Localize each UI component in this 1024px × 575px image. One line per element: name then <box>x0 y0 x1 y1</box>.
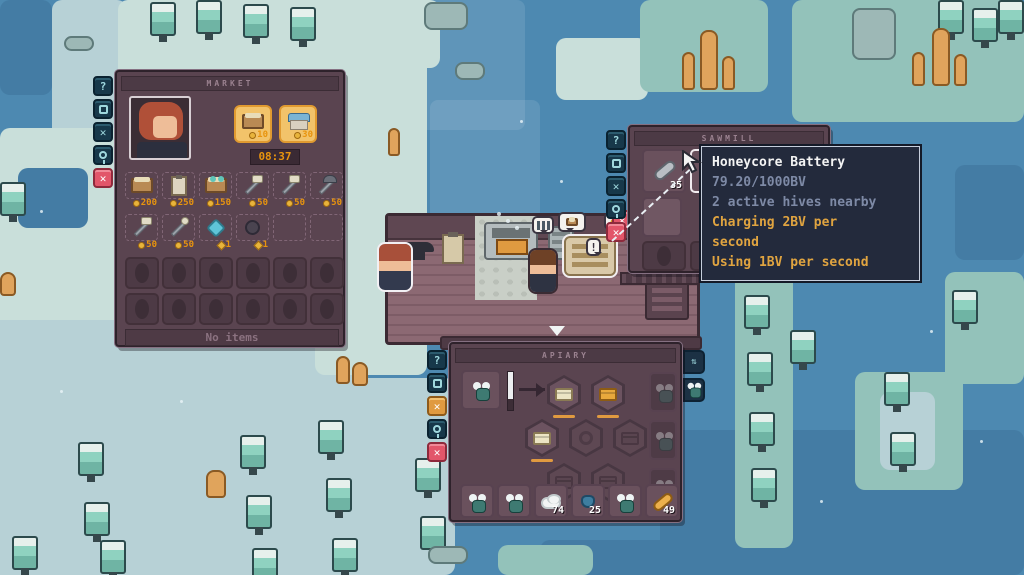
tooltip-using: Using 1BV per second <box>712 253 887 273</box>
no-items-label: No items <box>125 329 339 346</box>
shop-item-feed-crate[interactable]: 200 <box>125 172 159 210</box>
inventory-slot[interactable] <box>162 293 196 325</box>
buy-stall-button[interactable]: 30 <box>279 105 317 143</box>
tooltip-hives: 2 active hives nearby <box>712 193 887 213</box>
creature <box>0 272 16 296</box>
battery-slot[interactable]: 35 <box>642 149 686 193</box>
close-icon: ✕ <box>100 172 107 185</box>
pin-button[interactable] <box>427 419 447 439</box>
npc-character[interactable] <box>528 248 558 294</box>
coin-icon <box>249 200 256 207</box>
wire-dot <box>506 219 510 223</box>
sell-crate-button[interactable]: 10 <box>234 105 272 143</box>
clipboard-station[interactable] <box>442 234 464 264</box>
bee-currency-icon <box>216 240 226 250</box>
bee-ghost-slot[interactable] <box>649 372 677 412</box>
land-patch <box>498 545 593 575</box>
water-dark-patch <box>0 0 52 95</box>
bee-icon <box>468 494 488 512</box>
merchant-face <box>153 116 177 138</box>
crystal-icon <box>206 218 226 238</box>
apiary-panel: APIARY 74 25 <box>449 342 682 522</box>
fence <box>620 272 700 285</box>
tree <box>240 435 266 469</box>
queen-bee-slot[interactable] <box>461 370 501 410</box>
tree <box>246 495 272 529</box>
tree <box>290 7 316 41</box>
resize-button[interactable] <box>93 99 113 119</box>
bee-item-slot[interactable] <box>608 484 642 518</box>
pond <box>18 168 88 228</box>
merchant-portrait <box>129 96 191 160</box>
tree <box>747 352 773 386</box>
market-title: MARKET <box>121 76 339 91</box>
alert-symbol: ! <box>590 241 597 254</box>
nectar-count: 25 <box>589 505 601 516</box>
tree <box>12 536 38 570</box>
game-screen: ¢ ! ✕ ? ✕ ✕ MARKET 10 30 08:37 200 <box>0 0 1024 575</box>
orange-spire <box>388 128 400 156</box>
coin-icon <box>175 242 182 249</box>
battery-tooltip: Honeycore Battery 79.20/1000BV 2 active … <box>701 146 920 281</box>
help-button[interactable]: ? <box>427 350 447 370</box>
coin-icon <box>286 200 293 207</box>
tree <box>790 330 816 364</box>
shop-slot-empty[interactable] <box>310 214 344 252</box>
player-character[interactable] <box>377 242 413 292</box>
bee-silhouette-icon <box>655 432 675 450</box>
question-icon: ? <box>100 80 107 93</box>
locked-box-icon <box>621 432 639 445</box>
pin-button[interactable] <box>93 145 113 165</box>
hex-node-locked[interactable] <box>613 419 647 457</box>
feed-crate-icon <box>131 178 153 193</box>
hammer-icon <box>131 217 153 239</box>
tree <box>0 182 26 216</box>
shop-item-pickaxe[interactable]: 50 <box>310 172 344 210</box>
pin-icon <box>433 425 441 433</box>
npc-alert-bubble: ! <box>586 238 601 256</box>
battery-icon <box>652 159 677 183</box>
bee-silhouette-icon <box>655 384 675 402</box>
bee-item-slot[interactable] <box>497 484 531 518</box>
tree <box>150 2 176 36</box>
breeding-progress-bar <box>507 371 514 411</box>
rock <box>424 2 468 30</box>
sawmill-title: SAWMILL <box>634 131 824 146</box>
move-icon: ✕ <box>613 180 620 193</box>
orange-spire <box>954 54 967 86</box>
orange-mushroom <box>352 362 368 386</box>
sparkle <box>560 180 563 183</box>
help-button[interactable]: ? <box>606 130 626 150</box>
resize-icon <box>433 379 442 388</box>
question-icon: ? <box>434 354 441 367</box>
coin-icon <box>294 132 301 139</box>
coin-icon <box>249 132 256 139</box>
tree <box>196 0 222 34</box>
hex-node-locked[interactable] <box>569 419 603 457</box>
sparkle <box>520 120 523 123</box>
sparkle <box>40 210 43 213</box>
bee-item-slot[interactable] <box>460 484 494 518</box>
shop-item-crystal[interactable]: 1 <box>199 214 233 252</box>
water-shimmer <box>430 100 540 220</box>
inventory-slot[interactable] <box>199 293 233 325</box>
inventory-slot[interactable] <box>199 257 233 289</box>
tooltip-charging: Charging 2BV per second <box>712 213 887 253</box>
resize-icon <box>612 159 621 168</box>
bee-icon <box>616 494 636 512</box>
move-button[interactable]: ✕ <box>606 176 626 196</box>
market-side-buttons: ? ✕ ✕ <box>93 76 115 191</box>
rock <box>428 546 468 564</box>
market-timer: 08:37 <box>250 149 300 165</box>
locked-icon <box>579 431 593 445</box>
shovel-icon <box>242 175 264 197</box>
shop-item-frog-cart[interactable]: 150 <box>199 172 233 210</box>
tree <box>100 540 126 574</box>
resize-button[interactable] <box>427 373 447 393</box>
tree <box>751 468 777 502</box>
bee-currency-icon <box>253 240 263 250</box>
rock <box>852 8 896 60</box>
resize-icon <box>99 105 108 114</box>
land-patch <box>945 272 1024 384</box>
shop-item-hammer[interactable]: 50 <box>125 214 159 252</box>
inventory-slot[interactable] <box>310 293 344 325</box>
market-panel: MARKET 10 30 08:37 200 250 150 <box>115 70 345 347</box>
tree <box>890 432 916 466</box>
tooltip-charge: 79.20/1000BV <box>712 173 887 193</box>
npc-hair <box>530 250 556 265</box>
pin-icon <box>612 205 620 213</box>
sort-icon: ⇅ <box>691 357 696 367</box>
orange-spire <box>682 52 695 90</box>
hex-underline <box>553 415 575 418</box>
inventory-slot[interactable] <box>236 293 270 325</box>
tree <box>318 420 344 454</box>
clipboard-icon <box>171 176 187 196</box>
coin-icon <box>323 200 330 207</box>
npc-face <box>530 265 556 274</box>
apiary-title: APIARY <box>455 348 676 363</box>
inventory-slot[interactable] <box>125 293 159 325</box>
honey-box-icon <box>599 388 617 401</box>
inventory-slot[interactable] <box>273 257 307 289</box>
crate-icon <box>566 218 578 226</box>
market-stall-icon <box>288 113 308 129</box>
move-icon: ✕ <box>434 400 441 413</box>
question-icon: ? <box>613 134 620 147</box>
merchant-shirt <box>137 142 187 158</box>
tree <box>243 4 269 38</box>
hive-speech-bubble <box>532 216 554 234</box>
player-hair <box>379 244 411 261</box>
orange-mushroom <box>336 356 350 384</box>
sawmill-slot[interactable] <box>642 197 682 237</box>
orange-spire <box>722 56 735 90</box>
trade-speech-bubble <box>558 212 586 232</box>
inventory-slot[interactable] <box>162 257 196 289</box>
player-face <box>379 261 411 271</box>
frog-cart-icon <box>205 178 227 193</box>
tree <box>972 8 998 42</box>
bee-ghost-slot[interactable] <box>649 420 677 460</box>
apiary-bee-tab[interactable] <box>683 378 705 402</box>
shop-item-yarn[interactable]: 1 <box>236 214 270 252</box>
tree <box>744 295 770 329</box>
inventory-slot[interactable] <box>310 257 344 289</box>
sparkle <box>60 390 63 393</box>
tree <box>749 412 775 446</box>
rock <box>64 36 94 51</box>
tree <box>952 290 978 324</box>
crate-icon <box>242 114 264 129</box>
hex-node-honey-box[interactable] <box>591 375 625 413</box>
close-icon: ✕ <box>434 446 441 459</box>
ladle-icon <box>168 217 190 239</box>
shop-slot-empty[interactable] <box>273 214 307 252</box>
inventory-slot[interactable] <box>273 293 307 325</box>
arrow-icon <box>519 388 545 391</box>
coin-icon <box>207 200 214 207</box>
tree <box>252 548 278 575</box>
hex-underline <box>597 415 619 418</box>
yarn-icon <box>245 220 260 235</box>
pin-button[interactable] <box>606 199 626 219</box>
axe-icon <box>279 175 301 197</box>
fluff-count: 74 <box>552 505 564 516</box>
tree <box>84 502 110 536</box>
coin-icon <box>138 242 145 249</box>
tree <box>884 372 910 406</box>
bee-icon <box>505 494 525 512</box>
tooltip-title: Honeycore Battery <box>712 153 887 173</box>
tree <box>78 442 104 476</box>
wire-dot <box>497 212 501 216</box>
shop-item-ladle[interactable]: 50 <box>162 214 196 252</box>
pin-icon <box>99 151 107 159</box>
shop-item-shovel[interactable]: 50 <box>236 172 270 210</box>
cream-box-icon <box>533 432 551 445</box>
move-button[interactable]: ✕ <box>93 122 113 142</box>
player-body <box>379 271 411 290</box>
tree <box>420 516 446 550</box>
nectar-item-slot[interactable]: 25 <box>571 484 605 518</box>
bee-icon <box>687 383 701 397</box>
sparkle <box>820 500 823 503</box>
hex-underline <box>531 459 553 462</box>
coin-icon <box>170 200 177 207</box>
sparkle <box>180 400 183 403</box>
inventory-slot[interactable] <box>125 257 159 289</box>
tree <box>326 478 352 512</box>
honey-count: 49 <box>663 505 675 516</box>
inventory-slot[interactable] <box>236 257 270 289</box>
apiary-close-button[interactable]: ✕ <box>427 442 447 462</box>
mouse-cursor <box>681 150 703 174</box>
market-close-button[interactable]: ✕ <box>93 168 113 188</box>
wire-dot <box>515 226 519 230</box>
land-patch <box>0 320 360 575</box>
shelf[interactable] <box>645 282 689 320</box>
honey-item-slot[interactable]: 49 <box>645 484 679 518</box>
sparkle <box>930 330 933 333</box>
move-button[interactable]: ✕ <box>427 396 447 416</box>
coin-icon <box>133 200 140 207</box>
npc-body <box>530 274 556 292</box>
sawmill-slot[interactable] <box>642 241 686 271</box>
hex-node-cream-box[interactable] <box>525 419 559 457</box>
water-dark-patch <box>955 165 1024 260</box>
tree <box>332 538 358 572</box>
help-button[interactable]: ? <box>93 76 113 96</box>
shop-item-clipboard[interactable]: 250 <box>162 172 196 210</box>
orange-spire <box>912 52 925 86</box>
sparkle <box>980 440 983 443</box>
cream-box-icon <box>555 388 573 401</box>
shop-item-axe[interactable]: 50 <box>273 172 307 210</box>
orange-spire <box>932 28 950 86</box>
land-patch <box>556 38 648 100</box>
pickaxe-icon <box>316 175 338 197</box>
orange-spire <box>700 30 718 90</box>
tree <box>998 0 1024 34</box>
apiary-side-buttons: ? ✕ ✕ <box>427 350 449 465</box>
rock <box>455 62 485 80</box>
fluff-item-slot[interactable]: 74 <box>534 484 568 518</box>
lantern <box>206 470 226 498</box>
resize-button[interactable] <box>606 153 626 173</box>
bee-icon <box>472 382 492 400</box>
move-icon: ✕ <box>100 126 107 139</box>
apiary-sort-tab[interactable]: ⇅ <box>683 350 705 374</box>
hex-node-cream-box[interactable] <box>547 375 581 413</box>
